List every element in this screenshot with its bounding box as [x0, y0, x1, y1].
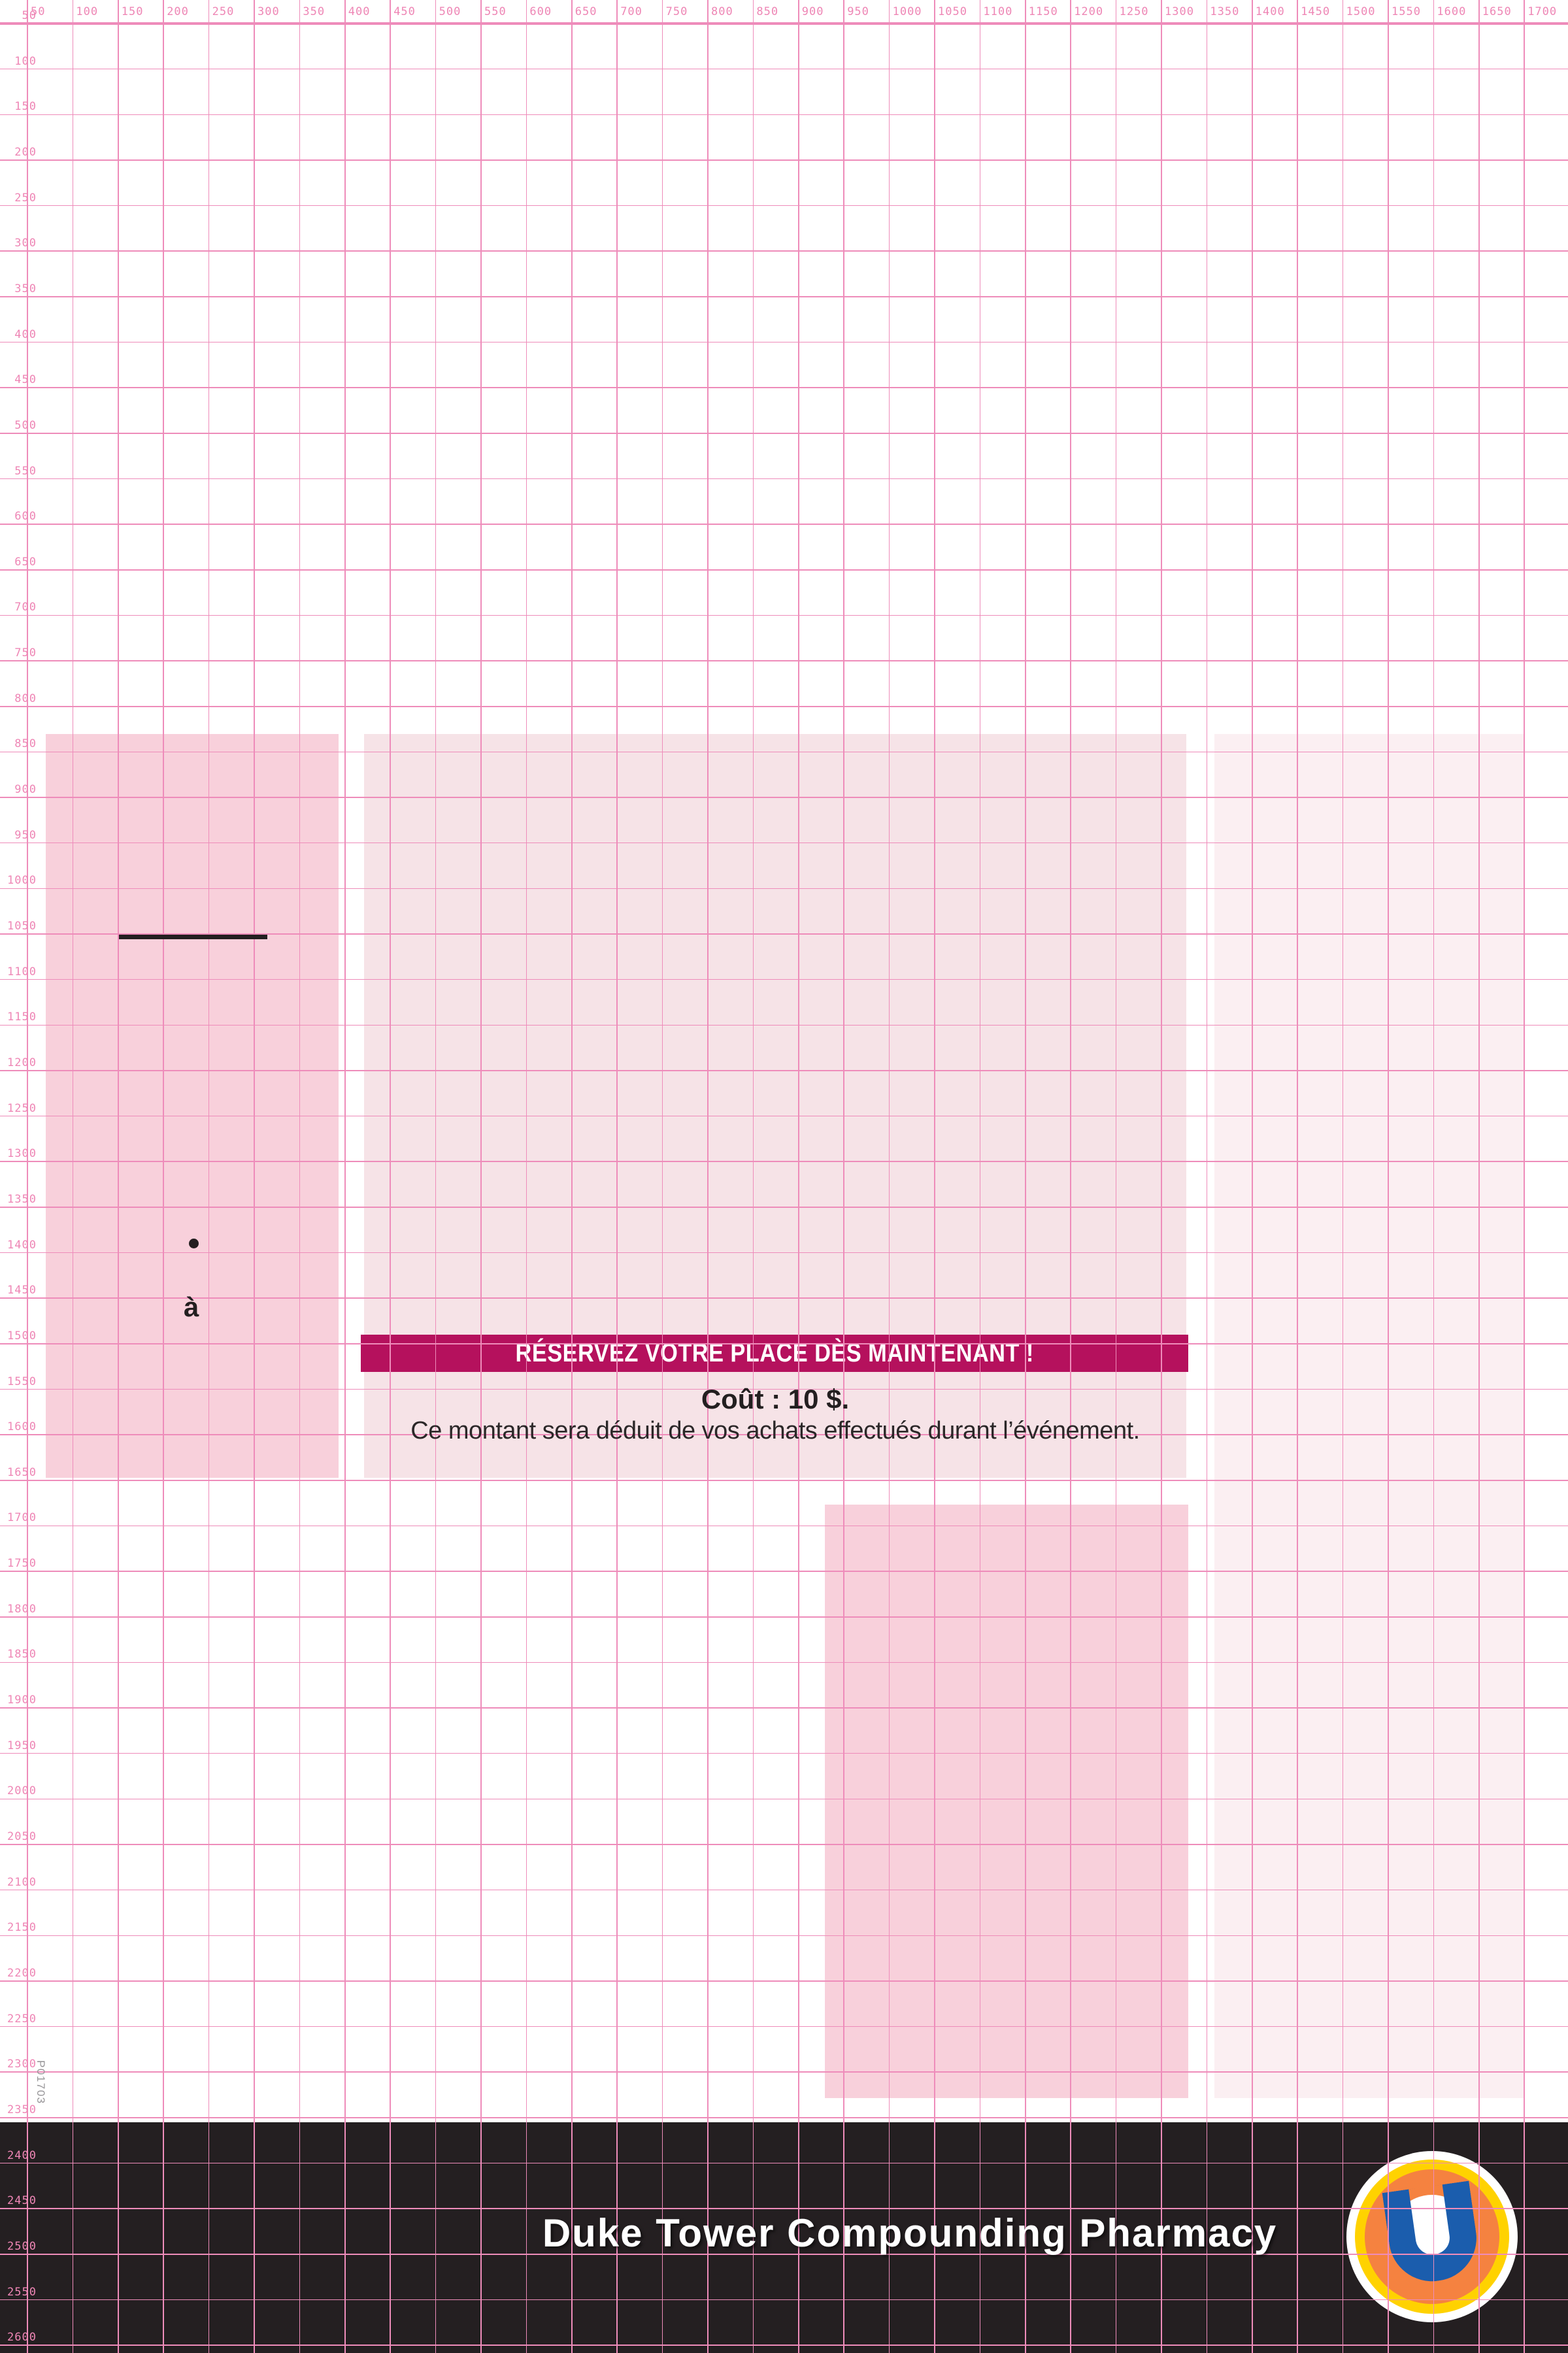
- ruler-label-top: 550: [484, 5, 507, 18]
- grid-horizontal-line: [0, 1844, 1568, 1845]
- cost-note-line: Ce montant sera déduit de vos achats eff…: [363, 1416, 1187, 1446]
- ruler-label-left: 650: [5, 556, 37, 569]
- grid-vertical-line: [1343, 0, 1344, 2353]
- ruler-label-left: 2150: [5, 1921, 37, 1934]
- ruler-label-left: 2350: [5, 2103, 37, 2116]
- ruler-label-left: 450: [5, 373, 37, 386]
- ruler-label-left: 1950: [5, 1739, 37, 1752]
- grid-vertical-line: [1116, 0, 1117, 2353]
- ruler-label-left: 1200: [5, 1056, 37, 1069]
- ruler-label-left: 1000: [5, 874, 37, 887]
- grid-vertical-line: [1025, 0, 1026, 2353]
- ruler-label-left: 2400: [5, 2149, 37, 2162]
- bullet-point: [189, 1239, 199, 1248]
- print-proof-page: RÉSERVEZ VOTRE PLACE DÈS MAINTENANT ! 50…: [0, 0, 1568, 2353]
- placeholder-dash-rule: [119, 935, 267, 939]
- block-left-pink: [46, 734, 339, 1478]
- ruler-label-left: 250: [5, 192, 37, 205]
- grid-horizontal-line: [0, 1070, 1568, 1071]
- grid-horizontal-line: [0, 933, 1568, 935]
- ruler-label-top: 150: [122, 5, 144, 18]
- ruler-label-left: 200: [5, 146, 37, 159]
- grid-horizontal-line: [0, 2071, 1568, 2073]
- grid-horizontal-line: [0, 2208, 1568, 2209]
- ruler-label-left: 1550: [5, 1375, 37, 1388]
- ruler-label-left: 1400: [5, 1239, 37, 1252]
- ruler-label-left: 1350: [5, 1193, 37, 1206]
- cost-amount-line: Coût : 10 $.: [363, 1383, 1187, 1416]
- grid-horizontal-line: [0, 888, 1568, 890]
- grid-vertical-line: [435, 0, 437, 2353]
- ruler-label-left: 800: [5, 692, 37, 705]
- ruler-label-top: 200: [167, 5, 189, 18]
- grid-vertical-line: [798, 0, 799, 2353]
- proof-code-vertical: P01703: [34, 2060, 47, 2105]
- grid-vertical-line: [526, 0, 527, 2353]
- grid-horizontal-line: [0, 1161, 1568, 1162]
- grid-vertical-line: [662, 0, 663, 2353]
- block-center-light: [364, 734, 1186, 1478]
- ruler-label-top: 750: [666, 5, 688, 18]
- ruler-label-left: 1750: [5, 1557, 37, 1570]
- ruler-label-top: 50: [31, 5, 45, 18]
- ruler-label-left: 400: [5, 328, 37, 341]
- ruler-label-left: 2600: [5, 2331, 37, 2344]
- block-lower-middle: [825, 1505, 1188, 2098]
- grid-vertical-line: [1524, 0, 1525, 2353]
- grid-horizontal-line: [0, 706, 1568, 707]
- grid-horizontal-line: [0, 797, 1568, 798]
- ruler-label-left: 1150: [5, 1010, 37, 1024]
- ruler-label-left: 850: [5, 737, 37, 750]
- grid-horizontal-line: [0, 1980, 1568, 1982]
- ruler-label-left: 600: [5, 510, 37, 523]
- grid-horizontal-line: [0, 752, 1568, 753]
- color-blocks-layer: [0, 0, 1568, 2353]
- ruler-label-top: 1700: [1527, 5, 1557, 18]
- grid-vertical-line: [616, 0, 618, 2353]
- grid-horizontal-line: [0, 569, 1568, 571]
- grid-horizontal-line: [0, 114, 1568, 116]
- grid-horizontal-line: [0, 1343, 1568, 1344]
- grid-horizontal-line: [0, 433, 1568, 434]
- grid-vertical-line: [1161, 0, 1162, 2353]
- grid-vertical-line: [27, 0, 28, 2353]
- ruler-label-left: 2500: [5, 2240, 37, 2253]
- grid-horizontal-line: [0, 1207, 1568, 1208]
- grid-vertical-line: [1433, 0, 1435, 2353]
- ruler-label-top: 1050: [938, 5, 967, 18]
- ruler-label-top: 1450: [1301, 5, 1330, 18]
- ruler-label-left: 500: [5, 419, 37, 432]
- grid-vertical-line: [707, 0, 709, 2353]
- grid-horizontal-line: [0, 2254, 1568, 2255]
- grid-vertical-line: [571, 0, 573, 2353]
- grid-vertical-line: [889, 0, 890, 2353]
- ruler-label-left: 1650: [5, 1466, 37, 1479]
- grid-horizontal-line: [0, 1571, 1568, 1572]
- ruler-label-left: 1600: [5, 1420, 37, 1433]
- grid-horizontal-line: [0, 2026, 1568, 2028]
- ruler-label-left: 1450: [5, 1284, 37, 1297]
- ruler-label-left: 1900: [5, 1694, 37, 1707]
- grid-horizontal-line: [0, 2299, 1568, 2301]
- grid-vertical-line: [843, 0, 844, 2353]
- grid-vertical-line: [1297, 0, 1298, 2353]
- grid-vertical-line: [1070, 0, 1071, 2353]
- ruler-label-left: 1500: [5, 1329, 37, 1343]
- grid-vertical-line: [480, 0, 482, 2353]
- grid-vertical-line: [1478, 0, 1480, 2353]
- ruler-label-left: 300: [5, 237, 37, 250]
- grid-horizontal-line: [0, 1480, 1568, 1481]
- grid-horizontal-line: [0, 387, 1568, 388]
- ruler-label-left: 900: [5, 783, 37, 796]
- ruler-label-top: 250: [212, 5, 235, 18]
- ruler-label-left: 2550: [5, 2286, 37, 2299]
- ruler-label-top: 1000: [893, 5, 922, 18]
- ruler-label-top: 100: [76, 5, 98, 18]
- grid-horizontal-line: [0, 615, 1568, 616]
- ruler-label-left: 350: [5, 282, 37, 295]
- grid-vertical-line: [934, 0, 935, 2353]
- ruler-label-left: 50: [5, 9, 37, 22]
- grid-horizontal-line: [0, 1116, 1568, 1117]
- grid-vertical-line: [1207, 0, 1208, 2353]
- grid-horizontal-line: [0, 524, 1568, 525]
- ruler-label-top: 500: [439, 5, 461, 18]
- grid-horizontal-line: [0, 22, 1568, 25]
- cost-text-block: Coût : 10 $. Ce montant sera déduit de v…: [363, 1383, 1187, 1446]
- grid-horizontal-line: [0, 1025, 1568, 1026]
- block-right-faint: [1214, 734, 1524, 2098]
- ruler-label-left: 2100: [5, 1876, 37, 1889]
- grid-horizontal-line: [0, 205, 1568, 207]
- grid-horizontal-line: [0, 1753, 1568, 1754]
- grid-horizontal-line: [0, 1252, 1568, 1254]
- ruler-label-top: 1150: [1029, 5, 1058, 18]
- grid-vertical-line: [1388, 0, 1389, 2353]
- ruler-label-top: 400: [348, 5, 371, 18]
- ruler-label-left: 1850: [5, 1648, 37, 1661]
- ruler-label-top: 850: [756, 5, 778, 18]
- grid-horizontal-line: [0, 2345, 1568, 2346]
- grid-vertical-line: [1252, 0, 1253, 2353]
- grid-horizontal-line: [0, 478, 1568, 480]
- ruler-label-top: 700: [620, 5, 642, 18]
- ruler-label-top: 1300: [1165, 5, 1194, 18]
- grid-horizontal-line: [0, 1526, 1568, 1527]
- grid-horizontal-line: [0, 979, 1568, 980]
- ruler-label-left: 1800: [5, 1603, 37, 1616]
- grid-horizontal-line: [0, 843, 1568, 844]
- ruler-label-top: 350: [303, 5, 325, 18]
- grid-horizontal-line: [0, 1434, 1568, 1435]
- ruler-label-left: 550: [5, 465, 37, 478]
- ruler-label-top: 450: [393, 5, 416, 18]
- ruler-label-top: 1600: [1437, 5, 1466, 18]
- ruler-label-top: 1250: [1120, 5, 1149, 18]
- ruler-label-top: 1550: [1392, 5, 1421, 18]
- grid-horizontal-line: [0, 1935, 1568, 1937]
- grid-vertical-line: [163, 0, 164, 2353]
- pharmacy-name-title: Duke Tower Compounding Pharmacy: [542, 2211, 1277, 2256]
- ruler-label-top: 600: [529, 5, 552, 18]
- grid-horizontal-line: [0, 2117, 1568, 2118]
- ruler-label-top: 1200: [1074, 5, 1103, 18]
- reserve-banner: RÉSERVEZ VOTRE PLACE DÈS MAINTENANT !: [361, 1335, 1188, 1372]
- grid-vertical-line: [73, 0, 74, 2353]
- grid-vertical-line: [344, 0, 346, 2353]
- reserve-banner-text: RÉSERVEZ VOTRE PLACE DÈS MAINTENANT !: [515, 1339, 1033, 1368]
- grid-vertical-line: [299, 0, 301, 2353]
- grid-vertical-line: [254, 0, 255, 2353]
- ruler-label-left: 950: [5, 829, 37, 842]
- ruler-label-left: 1300: [5, 1147, 37, 1160]
- ruler-label-top: 950: [847, 5, 869, 18]
- ruler-label-top: 900: [802, 5, 824, 18]
- grid-horizontal-line: [0, 296, 1568, 297]
- grid-vertical-line: [980, 0, 981, 2353]
- grid-horizontal-line: [0, 250, 1568, 252]
- grid-horizontal-line: [0, 69, 1568, 70]
- grid-vertical-line: [209, 0, 210, 2353]
- uniprix-u-logo: [1346, 2151, 1518, 2322]
- ruler-label-left: 2250: [5, 2012, 37, 2026]
- letter-a-mark: à: [184, 1292, 199, 1323]
- ruler-label-top: 300: [258, 5, 280, 18]
- grid-vertical-line: [753, 0, 754, 2353]
- ruler-label-left: 150: [5, 100, 37, 113]
- grid-horizontal-line: [0, 1616, 1568, 1618]
- grid-horizontal-line: [0, 660, 1568, 661]
- ruler-label-top: 1650: [1482, 5, 1512, 18]
- ruler-label-top: 1100: [983, 5, 1012, 18]
- ruler-label-left: 750: [5, 646, 37, 659]
- ruler-label-left: 100: [5, 55, 37, 68]
- ruler-label-left: 2000: [5, 1784, 37, 1797]
- ruler-label-left: 2050: [5, 1830, 37, 1843]
- grid-vertical-line: [390, 0, 391, 2353]
- grid-horizontal-line: [0, 342, 1568, 343]
- ruler-label-top: 800: [711, 5, 733, 18]
- ruler-label-left: 700: [5, 601, 37, 614]
- grid-horizontal-line: [0, 1297, 1568, 1299]
- grid-horizontal-line: [0, 2163, 1568, 2164]
- ruler-label-left: 2450: [5, 2194, 37, 2207]
- grid-horizontal-line: [0, 1389, 1568, 1390]
- grid-vertical-line: [118, 0, 119, 2353]
- ruler-label-left: 1050: [5, 920, 37, 933]
- footer-bar: [0, 2122, 1568, 2353]
- grid-horizontal-line: [0, 1662, 1568, 1663]
- ruler-label-left: 2300: [5, 2058, 37, 2071]
- ruler-label-left: 1100: [5, 965, 37, 978]
- ruler-label-top: 650: [575, 5, 597, 18]
- ruler-label-left: 1700: [5, 1511, 37, 1524]
- measurement-grid: 5010015020025030035040045050055060065070…: [0, 0, 1568, 2353]
- ruler-label-top: 1500: [1346, 5, 1376, 18]
- ruler-label-top: 1350: [1210, 5, 1239, 18]
- ruler-label-left: 1250: [5, 1102, 37, 1115]
- grid-horizontal-line: [0, 1890, 1568, 1891]
- ruler-label-top: 1400: [1256, 5, 1285, 18]
- grid-horizontal-line: [0, 1707, 1568, 1709]
- grid-horizontal-line: [0, 159, 1568, 161]
- ruler-label-left: 2200: [5, 1967, 37, 1980]
- grid-horizontal-line: [0, 1799, 1568, 1800]
